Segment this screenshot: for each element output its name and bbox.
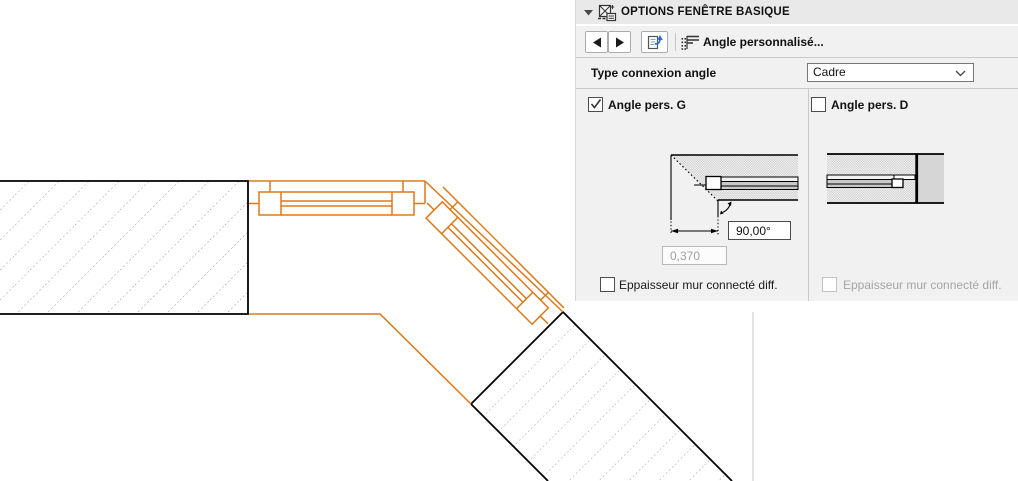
- wall-upper[interactable]: [0, 181, 248, 314]
- right-angle-diagram: [821, 150, 951, 210]
- transfer-parameters-button[interactable]: [641, 31, 668, 53]
- panel-header[interactable]: OPTIONS FENÊTRE BASIQUE: [576, 0, 1018, 26]
- left-thickness-label: Eppaisseur mur connecté diff.: [619, 278, 778, 292]
- divider: [576, 88, 1018, 89]
- offset-value-input: [662, 246, 727, 265]
- checkmark-icon: [589, 97, 603, 111]
- window-options-icon: [597, 3, 617, 22]
- next-button[interactable]: [608, 31, 631, 53]
- angle-value-input[interactable]: [728, 221, 791, 240]
- angle-pers-d-checkbox[interactable]: [811, 97, 826, 112]
- wall-diagonal[interactable]: [471, 312, 732, 481]
- angle-pers-d-label: Angle pers. D: [831, 98, 908, 112]
- dropdown-value: Cadre: [813, 64, 846, 81]
- angle-pers-g-checkbox[interactable]: [588, 97, 603, 112]
- toolbar-separator: [675, 33, 676, 51]
- transfer-parameters-icon: [646, 34, 664, 51]
- mode-label[interactable]: Angle personnalisé...: [703, 31, 824, 53]
- left-thickness-checkbox[interactable]: [600, 277, 615, 292]
- connection-type-dropdown[interactable]: Cadre: [807, 63, 974, 82]
- divider: [576, 57, 1018, 58]
- options-panel: OPTIONS FENÊTRE BASIQUE: [575, 0, 1018, 301]
- panel-title: OPTIONS FENÊTRE BASIQUE: [621, 0, 790, 24]
- window-horizontal[interactable]: [249, 181, 425, 215]
- right-thickness-label: Eppaisseur mur connecté diff.: [843, 278, 1002, 292]
- arrow-left-icon: [592, 37, 602, 48]
- window-angled[interactable]: [419, 187, 564, 332]
- arrow-right-icon: [615, 37, 625, 48]
- previous-button[interactable]: [585, 31, 608, 53]
- collapse-triangle-icon[interactable]: [584, 9, 593, 16]
- app-window: OPTIONS FENÊTRE BASIQUE: [0, 0, 1018, 481]
- chevron-down-icon: [955, 70, 966, 77]
- angle-pers-g-label: Angle pers. G: [608, 98, 686, 112]
- connection-type-label: Type connexion angle: [591, 66, 716, 80]
- custom-angle-icon: [680, 33, 700, 51]
- column-divider: [808, 89, 809, 301]
- right-thickness-checkbox: [822, 277, 837, 292]
